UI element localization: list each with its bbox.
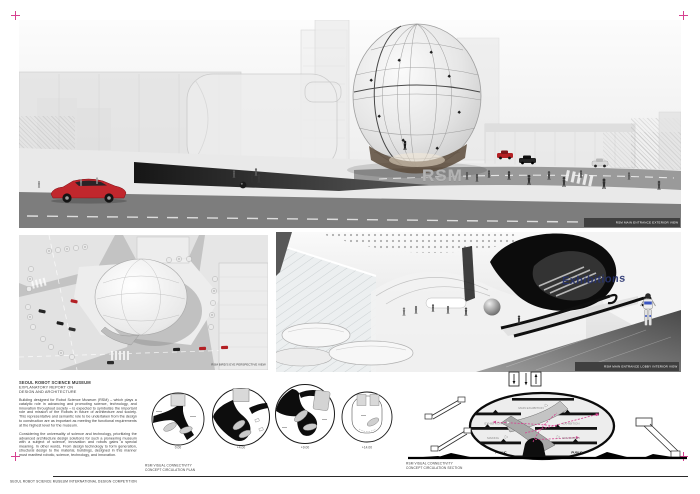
interior-render-svg bbox=[276, 232, 681, 372]
crop-mark-top-right bbox=[679, 11, 688, 20]
label-main-exhibition: MAIN EXHIBITION bbox=[518, 406, 543, 410]
report-text-block: SEOUL ROBOT SCIENCE MUSEUM EXPLANATORY R… bbox=[19, 381, 139, 494]
aerial-site-view: RSM BIRD'S EYE PERSPECTIVE VIEW bbox=[19, 235, 268, 370]
plans-caption-line2: CONCEPT CIRCULATION PLAN bbox=[145, 468, 195, 472]
plan-level-0-label: 0.00 bbox=[160, 446, 197, 450]
competition-board: RSM RSM MAIN ENTRANCE EXTERIOR VIEW bbox=[0, 0, 700, 494]
section-diagram-svg: MAIN EXHIBITION EXHIBITION EXHIBITION MA… bbox=[405, 371, 690, 463]
section-caption: RSM VISUAL CONNECTIVITY CONCEPT CIRCULAT… bbox=[406, 462, 463, 470]
hero-exterior-view: RSM RSM MAIN ENTRANCE EXTERIOR VIEW bbox=[19, 20, 681, 228]
footer-title: SEOUL ROBOT SCIENCE MUSEUM INTERNATIONAL… bbox=[10, 480, 137, 484]
footer-rule bbox=[53, 476, 688, 477]
label-public-left: PUBLIC bbox=[495, 451, 507, 455]
plan-level-4 bbox=[209, 386, 273, 452]
plan-level-14 bbox=[339, 389, 395, 447]
plan-level-9-label: +9.00 bbox=[283, 446, 327, 450]
plans-caption: RSM VISUAL CONNECTIVITY CONCEPT CIRCULAT… bbox=[145, 464, 195, 472]
hero-caption-bar: RSM MAIN ENTRANCE EXTERIOR VIEW bbox=[584, 218, 680, 227]
hero-caption: RSM MAIN ENTRANCE EXTERIOR VIEW bbox=[615, 221, 678, 225]
interior-caption-bar: RSM MAIN ENTRANCE LOBBY INTERIOR VIEW bbox=[575, 362, 679, 371]
aerial-caption: RSM BIRD'S EYE PERSPECTIVE VIEW bbox=[212, 363, 266, 367]
section-caption-line2: CONCEPT CIRCULATION SECTION bbox=[406, 466, 463, 470]
aerial-render-svg bbox=[19, 235, 268, 370]
label-making: MAKING bbox=[487, 436, 500, 440]
interior-caption: RSM MAIN ENTRANCE LOBBY INTERIOR VIEW bbox=[604, 365, 677, 369]
plan-level-4-label: +4.00 bbox=[220, 446, 262, 450]
section-legend bbox=[509, 372, 541, 386]
crop-mark-top-left bbox=[11, 11, 20, 20]
label-education: EDUCATION bbox=[562, 436, 579, 440]
label-exhibition-left: EXHIBITION bbox=[484, 421, 501, 425]
plan-level-9 bbox=[272, 383, 338, 449]
report-paragraph-2: Considering the universality of science … bbox=[19, 432, 137, 457]
interior-lobby-view: Exhibitions RSM MAIN ENTRANCE LOBBY INTE… bbox=[276, 232, 681, 372]
report-paragraph-1: Building designed for Robot Science Muse… bbox=[19, 398, 137, 428]
sphere-exhibit bbox=[484, 299, 501, 316]
label-exhibition-right: EXHIBITION bbox=[562, 421, 579, 425]
label-public-right: PUBLIC bbox=[571, 451, 583, 455]
report-subtitle-2: DESIGN AND ARCHITECTURE bbox=[19, 390, 137, 394]
rsm-plaza-sign: RSM bbox=[422, 166, 463, 186]
plan-level-0 bbox=[150, 390, 206, 450]
plan-level-14-label: +14.00 bbox=[349, 446, 386, 450]
hero-render-svg bbox=[19, 20, 681, 228]
circulation-section: MAIN EXHIBITION EXHIBITION EXHIBITION MA… bbox=[405, 371, 690, 463]
